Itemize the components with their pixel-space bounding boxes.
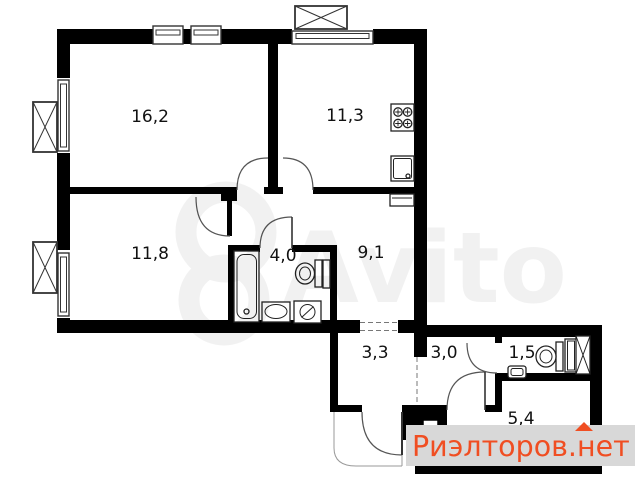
entrance-door-arc xyxy=(362,412,402,455)
balcony-icon xyxy=(33,242,57,293)
wall xyxy=(264,187,283,194)
wall xyxy=(414,325,602,337)
window-icon xyxy=(191,26,221,44)
wall xyxy=(57,29,70,78)
window-icon xyxy=(153,26,183,44)
kitchen-sink-icon xyxy=(391,156,414,181)
balcony-icon xyxy=(295,6,347,29)
shower-screen-icon xyxy=(565,339,577,372)
wall xyxy=(495,337,502,343)
wall xyxy=(268,44,278,194)
wall xyxy=(330,333,338,412)
duct-icon xyxy=(576,336,590,374)
wall xyxy=(330,405,362,412)
watermark-site-text: Риэлторов.нет xyxy=(412,430,630,463)
dashed-openings xyxy=(360,323,417,406)
balcony-icon xyxy=(33,102,57,152)
room-label-bedroom: 11,8 xyxy=(131,244,169,264)
stove-icon xyxy=(391,104,414,131)
window-icon xyxy=(58,80,69,151)
wall xyxy=(495,381,502,412)
room-label-entry-hall: 3,0 xyxy=(430,343,457,363)
wall xyxy=(183,29,191,44)
room-label-kitchen: 11,3 xyxy=(326,106,364,126)
bottom-watermark: Риэлторов.нет xyxy=(406,422,635,466)
wall xyxy=(57,153,70,250)
wall xyxy=(313,187,414,194)
pantry-door-arc xyxy=(447,372,485,410)
floor-plan-image: 16,2 11,3 11,8 4,0 9,1 3,3 3,0 1,5 5,4 A… xyxy=(0,0,635,480)
toilet-icon xyxy=(536,342,563,371)
wall xyxy=(57,29,153,44)
room-label-living-room: 16,2 xyxy=(131,107,169,127)
kitchen-door-arc xyxy=(283,158,313,190)
room-label-wc: 1,5 xyxy=(508,343,535,363)
watermark-ring-icon xyxy=(189,265,259,335)
hand-basin-icon xyxy=(508,366,526,378)
radiator-icon xyxy=(390,194,414,206)
window-icon xyxy=(58,253,69,316)
window-icon xyxy=(292,31,373,44)
watermark-logo-text: Avito xyxy=(283,212,567,326)
wall xyxy=(414,337,427,357)
floor-plan-svg: 16,2 11,3 11,8 4,0 9,1 3,3 3,0 1,5 5,4 A… xyxy=(0,0,635,480)
wall xyxy=(221,29,292,44)
room-label-corridor: 3,3 xyxy=(361,343,388,363)
wall xyxy=(485,405,495,412)
wc-door-arc xyxy=(467,343,497,373)
